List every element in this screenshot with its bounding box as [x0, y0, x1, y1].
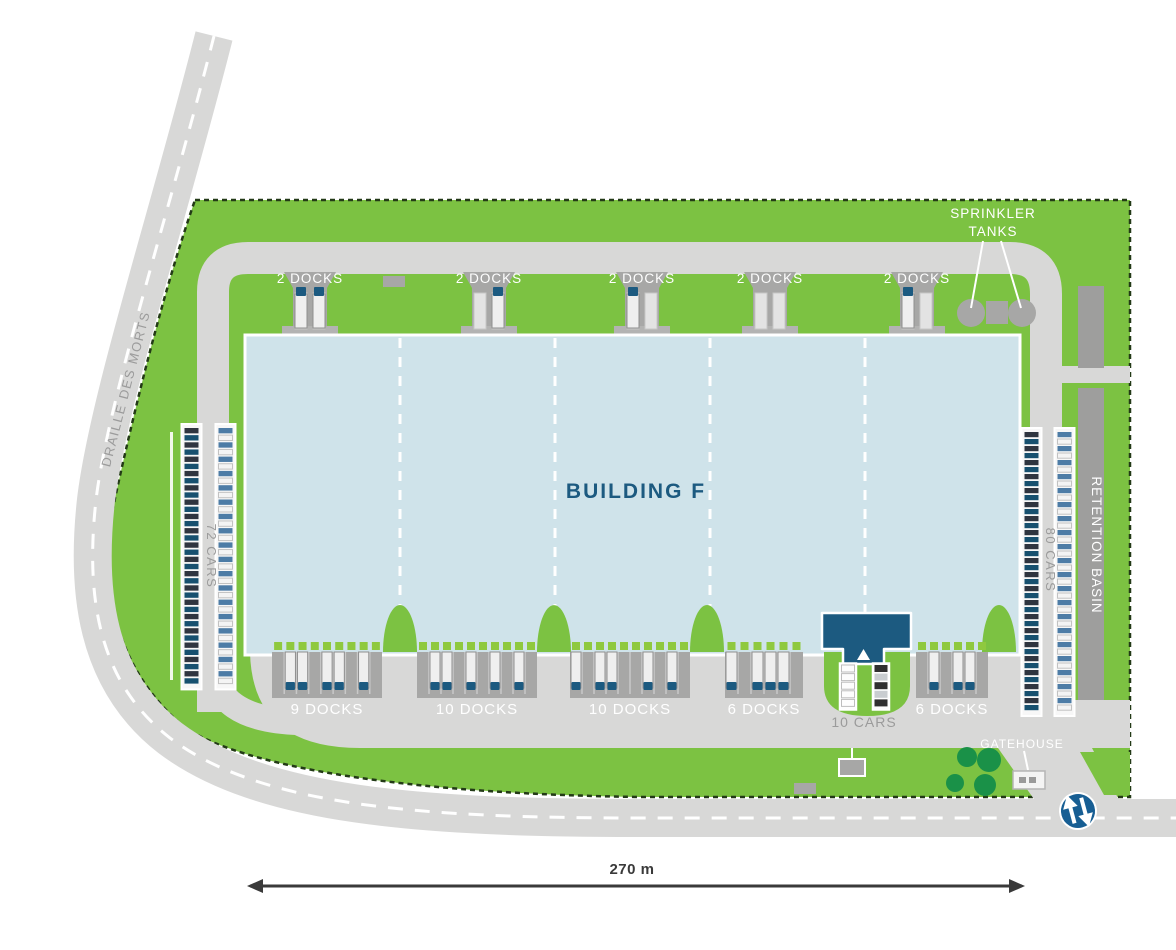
truck-cab — [467, 682, 476, 690]
parked-car — [185, 449, 199, 454]
parked-car — [1058, 621, 1072, 626]
tree — [957, 747, 977, 767]
truck-cab — [359, 682, 368, 690]
left-parking-edge-line — [170, 432, 173, 680]
parked-car — [219, 550, 233, 555]
parked-car — [1025, 481, 1039, 486]
parked-car — [1025, 586, 1039, 591]
truck-cab — [596, 682, 605, 690]
dock-door-marker — [728, 642, 736, 650]
parked-car — [1025, 614, 1039, 619]
parked-car — [219, 635, 233, 640]
dock-door-marker — [503, 642, 511, 650]
parked-car — [219, 621, 233, 626]
parked-car — [185, 607, 199, 612]
truck-slot — [920, 293, 932, 329]
parked-car — [1058, 705, 1072, 710]
parked-car — [1058, 474, 1072, 479]
building-label: BUILDING F — [566, 480, 706, 503]
parked-car — [1025, 593, 1039, 598]
truck-cab — [753, 682, 763, 690]
dock-door-marker — [572, 642, 580, 650]
scale-bar: 270 m — [247, 861, 1025, 893]
dock-door-marker — [360, 642, 368, 650]
dock-door-marker — [372, 642, 380, 650]
sprinkler-pump-house — [986, 301, 1008, 324]
parked-car — [1058, 614, 1072, 619]
parked-car — [1025, 516, 1039, 521]
parked-car — [219, 449, 233, 454]
parked-car — [1025, 558, 1039, 563]
parked-car — [219, 471, 233, 476]
parked-car — [1058, 565, 1072, 570]
truck-cab — [966, 682, 975, 690]
parked-car — [185, 428, 199, 433]
dock-door-marker — [918, 642, 926, 650]
parked-car — [1058, 593, 1072, 598]
center-parking-label: 10 CARS — [831, 714, 896, 730]
dock-door-marker — [274, 642, 282, 650]
truck-cab — [443, 682, 452, 690]
parked-car — [1025, 502, 1039, 507]
parked-car — [1058, 544, 1072, 549]
parked-car — [1025, 565, 1039, 570]
truck-cab — [644, 682, 653, 690]
parked-car — [185, 578, 199, 583]
parked-car — [219, 650, 233, 655]
parked-car — [1025, 551, 1039, 556]
dock-door-marker — [311, 642, 319, 650]
parked-car — [1058, 530, 1072, 535]
parked-car — [185, 535, 199, 540]
dock-door-marker — [455, 642, 463, 650]
truck-cab — [296, 287, 306, 296]
truck-slot — [755, 293, 767, 329]
empty-stall — [842, 674, 855, 681]
parked-car — [1025, 474, 1039, 479]
parked-car — [219, 600, 233, 605]
dock-door-marker — [632, 642, 640, 650]
truck-cab — [298, 682, 307, 690]
parked-car — [185, 671, 199, 676]
dock-door-marker — [323, 642, 331, 650]
dock-count-label: 2 DOCKS — [456, 271, 522, 286]
parked-car — [1058, 460, 1072, 465]
dock-door-marker — [286, 642, 294, 650]
parked-car — [185, 550, 199, 555]
dock-door-marker — [335, 642, 343, 650]
parked-car — [219, 592, 233, 597]
truck-slot — [645, 293, 657, 329]
truck-trailer — [313, 294, 325, 328]
truck-slot — [474, 293, 486, 329]
parked-car — [1025, 677, 1039, 682]
parked-car — [185, 435, 199, 440]
parked-car — [219, 564, 233, 569]
parked-car — [1025, 663, 1039, 668]
dock-door-marker — [954, 642, 962, 650]
parked-car — [219, 507, 233, 512]
parked-car — [185, 464, 199, 469]
parked-car — [185, 471, 199, 476]
parked-car — [185, 500, 199, 505]
parked-car — [185, 657, 199, 662]
truck-cab — [766, 682, 776, 690]
parked-car — [219, 643, 233, 648]
empty-stall — [842, 665, 855, 672]
left-parking-label: 72 CARS — [204, 524, 219, 589]
dock-door-marker — [419, 642, 427, 650]
dock-count-label: 2 DOCKS — [609, 271, 675, 286]
parked-car — [219, 464, 233, 469]
parked-car — [1058, 684, 1072, 689]
truck-trailer — [902, 294, 914, 328]
truck-trailer — [295, 294, 307, 328]
dock-count-label: 2 DOCKS — [884, 271, 950, 286]
dock-door-marker — [930, 642, 938, 650]
parked-car — [219, 628, 233, 633]
parked-car — [1058, 502, 1072, 507]
truck-cab — [572, 682, 581, 690]
empty-stall — [842, 691, 855, 698]
tree — [977, 748, 1001, 772]
parked-car — [1058, 586, 1072, 591]
parked-car — [219, 657, 233, 662]
truck-trailer — [627, 294, 639, 328]
parked-car — [219, 521, 233, 526]
parked-car — [1025, 600, 1039, 605]
parked-car — [1025, 495, 1039, 500]
small-structure — [383, 276, 405, 287]
dock-door-marker — [754, 642, 762, 650]
parked-car — [1058, 516, 1072, 521]
sprinkler-label-line2: TANKS — [968, 224, 1017, 239]
dock-door-marker — [620, 642, 628, 650]
dock-door-marker — [608, 642, 616, 650]
parked-car — [1025, 628, 1039, 633]
parked-car — [875, 691, 888, 698]
parked-car — [185, 614, 199, 619]
dock-door-marker — [680, 642, 688, 650]
parked-car — [219, 614, 233, 619]
parked-car — [185, 521, 199, 526]
dock-door-marker — [527, 642, 535, 650]
parked-car — [1025, 509, 1039, 514]
parked-car — [1058, 467, 1072, 472]
parked-car — [219, 428, 233, 433]
sprinkler-label-line1: SPRINKLER — [950, 206, 1036, 221]
retention-basin: RETENTION BASIN — [1078, 286, 1104, 700]
gatehouse-label: GATEHOUSE — [980, 737, 1063, 751]
parked-car — [219, 678, 233, 683]
parked-car — [1058, 432, 1072, 437]
parked-car — [1058, 551, 1072, 556]
truck-cab — [608, 682, 617, 690]
parked-car — [1025, 579, 1039, 584]
truck-cab — [727, 682, 737, 690]
dock-door-marker — [942, 642, 950, 650]
truck-cab — [322, 682, 331, 690]
parked-car — [185, 457, 199, 462]
parked-car — [219, 435, 233, 440]
dock-door-marker — [978, 642, 986, 650]
parked-car — [219, 607, 233, 612]
parked-car — [185, 478, 199, 483]
parked-car — [1025, 544, 1039, 549]
parked-car — [1058, 572, 1072, 577]
dock-door-marker — [644, 642, 652, 650]
parked-car — [219, 578, 233, 583]
parked-car — [1025, 649, 1039, 654]
parked-car — [185, 542, 199, 547]
parked-car — [1058, 607, 1072, 612]
parked-car — [1058, 439, 1072, 444]
parked-car — [185, 600, 199, 605]
parked-car — [1025, 691, 1039, 696]
parked-car — [1025, 523, 1039, 528]
site-plan-figure: 2 DOCKS2 DOCKS2 DOCKS2 DOCKS2 DOCKS BUIL… — [0, 0, 1176, 950]
parked-car — [1058, 537, 1072, 542]
parked-car — [1025, 439, 1039, 444]
parked-car — [219, 542, 233, 547]
parked-car — [1058, 628, 1072, 633]
parked-car — [219, 571, 233, 576]
parked-car — [1025, 432, 1039, 437]
truck-cab — [628, 287, 638, 296]
scale-label: 270 m — [609, 861, 654, 878]
dock-count-label: 2 DOCKS — [737, 271, 803, 286]
truck-cab — [930, 682, 939, 690]
right-parking-label: 80 CARS — [1043, 528, 1058, 593]
truck-cab — [779, 682, 789, 690]
small-structure — [794, 783, 816, 794]
parked-car — [1058, 495, 1072, 500]
parked-car — [1025, 705, 1039, 710]
parked-car — [875, 682, 888, 689]
parked-car — [1058, 579, 1072, 584]
parked-car — [1058, 670, 1072, 675]
parked-car — [1025, 572, 1039, 577]
parked-car — [1025, 656, 1039, 661]
parked-car — [219, 500, 233, 505]
parked-car — [185, 664, 199, 669]
truck-slot — [773, 293, 785, 329]
parked-car — [185, 442, 199, 447]
dock-count-label: 10 DOCKS — [589, 701, 671, 718]
parked-car — [1058, 635, 1072, 640]
parked-car — [1058, 656, 1072, 661]
dock-door-marker — [584, 642, 592, 650]
parked-car — [185, 485, 199, 490]
dock-count-label: 10 DOCKS — [436, 701, 518, 718]
parked-car — [219, 664, 233, 669]
parked-car — [1025, 684, 1039, 689]
parked-car — [1025, 537, 1039, 542]
truck-cab — [903, 287, 913, 296]
truck-cab — [431, 682, 440, 690]
parked-car — [219, 478, 233, 483]
parked-car — [1058, 642, 1072, 647]
parked-car — [219, 485, 233, 490]
parked-car — [185, 592, 199, 597]
parked-car — [1025, 642, 1039, 647]
parked-car — [185, 514, 199, 519]
parked-car — [1025, 635, 1039, 640]
parked-car — [185, 585, 199, 590]
parked-car — [1058, 509, 1072, 514]
empty-stall — [842, 699, 855, 706]
parked-car — [1025, 670, 1039, 675]
parked-car — [1025, 530, 1039, 535]
parked-car — [1025, 607, 1039, 612]
parked-car — [185, 628, 199, 633]
truck-cab — [515, 682, 524, 690]
parked-car — [185, 492, 199, 497]
parked-car — [1025, 698, 1039, 703]
retention-basin-label: RETENTION BASIN — [1089, 476, 1104, 613]
parked-car — [1025, 453, 1039, 458]
parked-car — [1058, 446, 1072, 451]
parked-car — [185, 643, 199, 648]
truck-cab — [491, 682, 500, 690]
parked-car — [1025, 621, 1039, 626]
dock-door-marker — [347, 642, 355, 650]
parked-car — [219, 557, 233, 562]
parked-car — [185, 635, 199, 640]
dock-door-marker — [443, 642, 451, 650]
empty-stall — [842, 682, 855, 689]
dock-door-marker — [767, 642, 775, 650]
dock-door-marker — [479, 642, 487, 650]
parked-car — [185, 678, 199, 683]
parked-car — [1025, 446, 1039, 451]
truck-cab — [954, 682, 963, 690]
parked-car — [1025, 460, 1039, 465]
parked-car — [875, 674, 888, 681]
dock-door-marker — [431, 642, 439, 650]
parked-car — [875, 699, 888, 706]
parked-car — [185, 564, 199, 569]
parked-car — [1058, 691, 1072, 696]
dock-door-marker — [668, 642, 676, 650]
parked-car — [1058, 677, 1072, 682]
sprinkler-tank — [1008, 299, 1036, 327]
dock-count-label: 6 DOCKS — [916, 701, 989, 718]
truck-cab — [335, 682, 344, 690]
truck-trailer — [492, 294, 504, 328]
parked-car — [1058, 698, 1072, 703]
dock-door-marker — [515, 642, 523, 650]
parked-car — [1058, 523, 1072, 528]
tree — [946, 774, 964, 792]
site-plan-svg: 2 DOCKS2 DOCKS2 DOCKS2 DOCKS2 DOCKS BUIL… — [0, 0, 1176, 950]
parked-car — [185, 557, 199, 562]
parked-car — [185, 528, 199, 533]
dock-door-marker — [656, 642, 664, 650]
dock-count-label: 6 DOCKS — [728, 701, 801, 718]
dock-count-label: 2 DOCKS — [277, 271, 343, 286]
dock-door-marker — [793, 642, 801, 650]
dock-door-marker — [596, 642, 604, 650]
parked-car — [219, 442, 233, 447]
parked-car — [1058, 488, 1072, 493]
dock-count-label: 9 DOCKS — [291, 701, 364, 718]
parked-car — [219, 528, 233, 533]
dock-door-marker — [741, 642, 749, 650]
parked-car — [219, 492, 233, 497]
parked-car — [185, 507, 199, 512]
parked-car — [185, 571, 199, 576]
parked-car — [1058, 481, 1072, 486]
tree — [974, 774, 996, 796]
parked-car — [219, 671, 233, 676]
parked-car — [219, 585, 233, 590]
parked-car — [1025, 467, 1039, 472]
truck-cab — [493, 287, 503, 296]
dock-door-marker — [780, 642, 788, 650]
parked-car — [875, 665, 888, 672]
parked-car — [219, 457, 233, 462]
parked-car — [1058, 649, 1072, 654]
parked-car — [1058, 600, 1072, 605]
parked-car — [219, 535, 233, 540]
dock-door-marker — [299, 642, 307, 650]
parked-car — [185, 621, 199, 626]
right-access-road — [1046, 366, 1130, 383]
parked-car — [1058, 558, 1072, 563]
parked-car — [1058, 663, 1072, 668]
parked-car — [219, 514, 233, 519]
dock-door-marker — [966, 642, 974, 650]
parked-car — [1025, 488, 1039, 493]
parked-car — [1058, 453, 1072, 458]
truck-cab — [668, 682, 677, 690]
dock-door-marker — [467, 642, 475, 650]
truck-cab — [286, 682, 295, 690]
truck-cab — [314, 287, 324, 296]
parked-car — [185, 650, 199, 655]
dock-door-marker — [491, 642, 499, 650]
